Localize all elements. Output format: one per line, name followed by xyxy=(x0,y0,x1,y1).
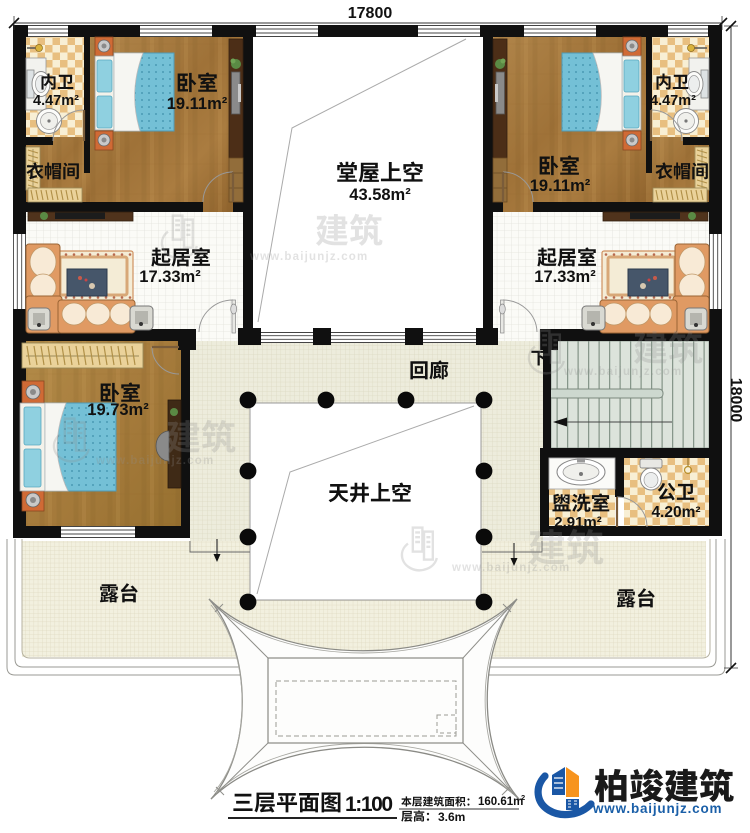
svg-text:www.baijunjz.com: www.baijunjz.com xyxy=(451,562,570,574)
svg-text:www.baijunjz.com: www.baijunjz.com xyxy=(95,455,214,467)
svg-text:www.baijunjz.com: www.baijunjz.com xyxy=(592,801,722,816)
svg-text:19.11m²: 19.11m² xyxy=(530,177,591,195)
svg-text:2: 2 xyxy=(521,793,525,802)
svg-text:3.6m: 3.6m xyxy=(438,810,465,824)
svg-text:19.11m²: 19.11m² xyxy=(167,95,228,113)
svg-text:4.47m²: 4.47m² xyxy=(33,93,79,109)
svg-text:www.baijunjz.com: www.baijunjz.com xyxy=(563,366,682,378)
svg-text:17.33m²: 17.33m² xyxy=(534,268,596,286)
svg-text:19.73m²: 19.73m² xyxy=(87,401,149,419)
svg-text:1:100: 1:100 xyxy=(345,793,393,816)
svg-text:4.47m²: 4.47m² xyxy=(650,93,696,109)
svg-text:17.33m²: 17.33m² xyxy=(139,268,201,286)
svg-text:www.baijunjz.com: www.baijunjz.com xyxy=(249,251,368,263)
svg-text:43.58m²: 43.58m² xyxy=(349,186,411,204)
svg-text:160.61m: 160.61m xyxy=(478,796,523,808)
svg-text:18000: 18000 xyxy=(727,378,744,423)
svg-text:4.20m²: 4.20m² xyxy=(651,504,700,521)
svg-text:2.91m²: 2.91m² xyxy=(554,514,602,531)
svg-text:17800: 17800 xyxy=(348,5,393,22)
